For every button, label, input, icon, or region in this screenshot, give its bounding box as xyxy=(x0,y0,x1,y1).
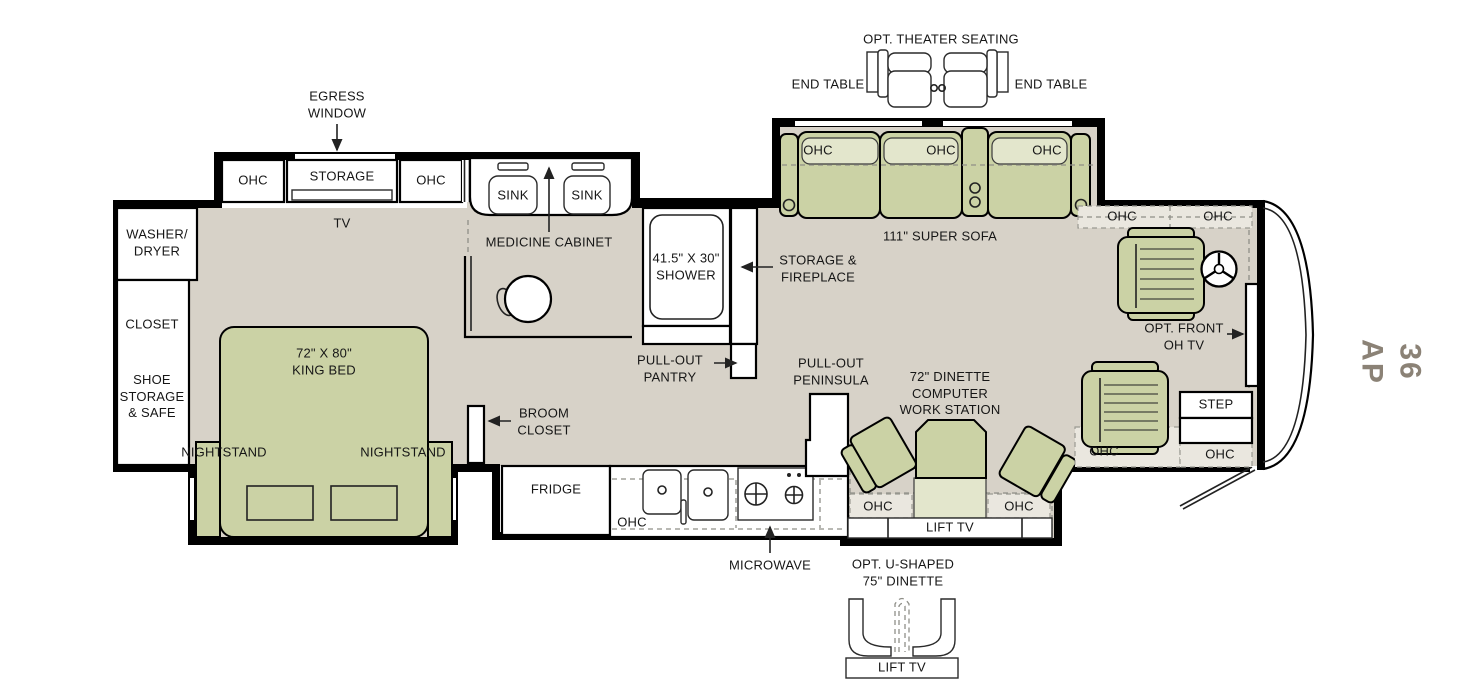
label-entry-ohc-right: OHC xyxy=(1205,447,1235,464)
faucet-right xyxy=(572,163,604,170)
step-box-2 xyxy=(1180,418,1252,443)
label-cab-ohc-right: OHC xyxy=(1203,209,1233,226)
shower-entry xyxy=(643,326,730,344)
label-sink-left: SINK xyxy=(497,188,528,205)
label-nightstand-right: NIGHTSTAND xyxy=(360,445,446,462)
label-end-table-left: END TABLE xyxy=(792,77,865,94)
theater-seat-left-back xyxy=(888,53,931,73)
faucet-left xyxy=(498,163,528,170)
steering-wheel xyxy=(1202,252,1237,287)
kitchen-faucet xyxy=(681,500,686,524)
label-dinette-lift-tv: LIFT TV xyxy=(926,520,974,537)
pantry-box xyxy=(731,344,756,378)
label-storage-fireplace: STORAGE & FIREPLACE xyxy=(779,252,856,285)
label-bed-ohc-left: OHC xyxy=(238,173,268,190)
u-bench-left xyxy=(849,599,891,656)
label-pull-out-pantry: PULL-OUT PANTRY xyxy=(637,352,703,385)
label-kitchen-ohc: OHC xyxy=(617,515,647,532)
front-oh-tv-bar xyxy=(1246,284,1258,386)
label-bed-storage: STORAGE xyxy=(310,169,375,186)
label-dinette-ohc-right: OHC xyxy=(1004,499,1034,516)
label-king-bed: 72" X 80" KING BED xyxy=(292,345,356,378)
label-end-table-right: END TABLE xyxy=(1015,77,1088,94)
label-sofa-ohc-2: OHC xyxy=(926,143,956,160)
peninsula xyxy=(806,394,848,476)
rv-floorplan: OPT. THEATER SEATING END TABLE END TABLE… xyxy=(0,0,1462,688)
entry-door-swing xyxy=(1180,467,1255,509)
fridge-box xyxy=(502,466,610,535)
label-step: STEP xyxy=(1199,397,1234,414)
label-shower: 41.5" X 30" SHOWER xyxy=(652,250,719,283)
driver-seat xyxy=(1118,228,1204,320)
toilet xyxy=(505,276,551,322)
label-cab-ohc-left: OHC xyxy=(1107,209,1137,226)
theater-seat-left xyxy=(888,71,931,107)
u-bench-right xyxy=(913,599,955,656)
sofa-arm-left xyxy=(780,134,798,216)
label-bed-ohc-right: OHC xyxy=(416,173,446,190)
label-pull-out-peninsula: PULL-OUT PENINSULA xyxy=(793,355,869,388)
label-sink-right: SINK xyxy=(571,188,602,205)
label-u-lift-tv: LIFT TV xyxy=(878,660,926,677)
label-washer-dryer: WASHER/ DRYER xyxy=(126,226,188,259)
label-shoe-storage: SHOE STORAGE & SAFE xyxy=(120,372,185,422)
kitchen-sink-left xyxy=(643,470,681,514)
label-super-sofa: 111" SUPER SOFA xyxy=(883,229,997,246)
sofa xyxy=(780,128,1094,218)
fireplace-cabinet xyxy=(731,208,757,344)
label-theater-seating: OPT. THEATER SEATING xyxy=(863,32,1019,49)
passenger-seat xyxy=(1082,362,1168,454)
label-microwave: MICROWAVE xyxy=(729,558,811,575)
windshield-curve xyxy=(1263,201,1313,469)
label-bed-tv: TV xyxy=(333,216,350,233)
sofa-console xyxy=(962,128,988,216)
broom-closet-box xyxy=(468,406,484,463)
label-closet: CLOSET xyxy=(125,317,178,334)
label-entry-ohc-left: OHC xyxy=(1089,444,1119,461)
dinette-table-leaf xyxy=(914,478,986,518)
label-dinette-ohc-left: OHC xyxy=(863,499,893,516)
theater-seating xyxy=(867,50,1008,107)
end-table-left-box xyxy=(867,52,878,92)
plan-code: 36 AP xyxy=(1352,326,1429,398)
label-front-oh-tv: OPT. FRONT OH TV xyxy=(1144,320,1223,353)
label-sofa-ohc-3: OHC xyxy=(1032,143,1062,160)
kitchen-sink-right xyxy=(688,470,728,520)
theater-seat-right xyxy=(944,71,987,107)
label-u-dinette: OPT. U-SHAPED 75" DINETTE xyxy=(852,556,954,589)
label-egress-window: EGRESS WINDOW xyxy=(308,88,366,121)
label-sofa-ohc-1: OHC xyxy=(803,143,833,160)
label-dinette: 72" DINETTE COMPUTER WORK STATION xyxy=(900,369,1001,419)
theater-seat-right-back xyxy=(944,53,987,73)
label-broom-closet: BROOM CLOSET xyxy=(517,405,570,438)
label-nightstand-left: NIGHTSTAND xyxy=(181,445,267,462)
end-table-right-box xyxy=(997,52,1008,92)
label-fridge: FRIDGE xyxy=(531,482,581,499)
dinette-table xyxy=(916,420,986,478)
label-medicine-cabinet: MEDICINE CABINET xyxy=(486,235,613,252)
floorplan-graphics xyxy=(0,0,1462,688)
